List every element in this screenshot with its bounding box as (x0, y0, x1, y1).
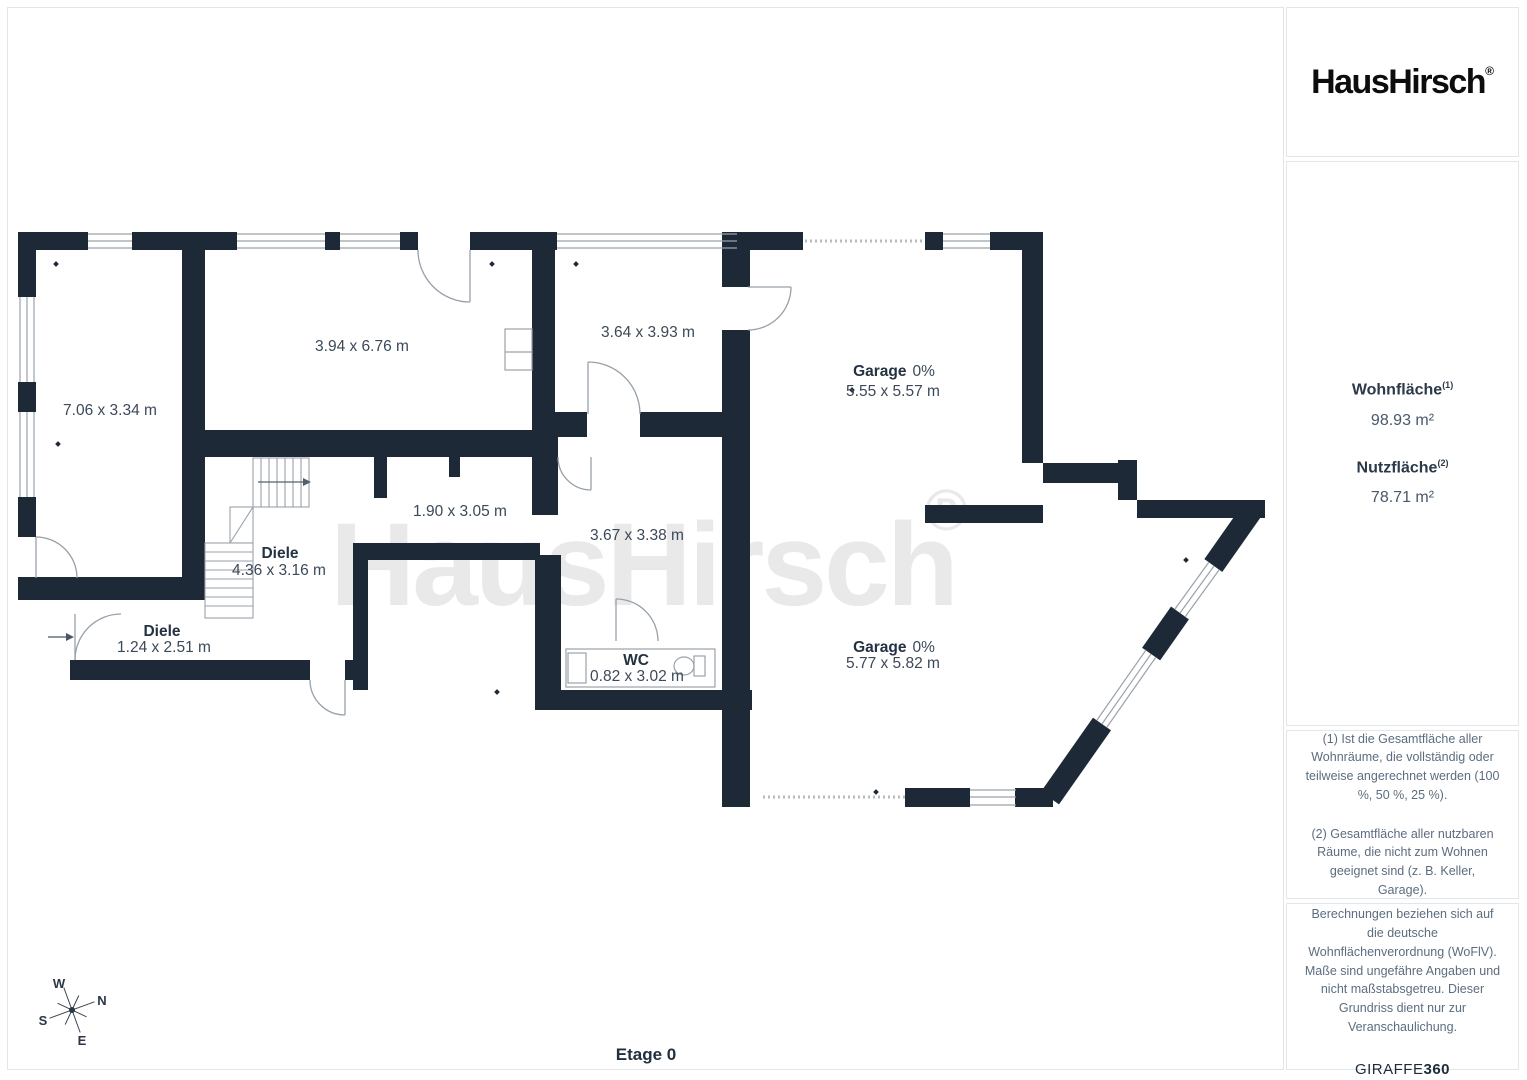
room-dims-room6: 3.67 x 3.38 m (590, 527, 684, 544)
disclaimer-text: Berechnungen beziehen sich auf die deuts… (1303, 905, 1502, 1036)
floorplan-svg: HausHirsch ® (0, 0, 1285, 1075)
room-dims-diele: 4.36 x 3.16 m (232, 562, 326, 579)
entry-arrow-icon (48, 633, 74, 641)
floor-label: Etage 0 (616, 1045, 676, 1064)
area-stats-card: Wohnfläche(1) 98.93 m² Nutzfläche(2) 78.… (1286, 161, 1519, 726)
room-name-garage-top: Garage0% (853, 363, 935, 380)
registered-mark-icon: ® (1485, 64, 1494, 78)
compass-n: N (97, 993, 106, 1008)
shaft-box (505, 329, 532, 370)
stat-value: 78.71 m² (1357, 489, 1449, 507)
footnote-1: (1) Ist die Gesamtfläche aller Wohnräume… (1305, 730, 1500, 805)
room-name-diele: Diele (261, 545, 298, 562)
stat-value: 98.93 m² (1352, 412, 1453, 430)
footnote-2: (2) Gesamtfläche aller nutzbaren Räume, … (1305, 825, 1500, 900)
room-dims-room2: 3.94 x 6.76 m (315, 338, 409, 355)
compass-icon: W N S E (39, 976, 107, 1048)
compass-w: W (53, 976, 66, 991)
stat-wohnflaeche: Wohnfläche(1) 98.93 m² (1352, 380, 1453, 429)
room-dims-wc: 0.82 x 3.02 m (590, 668, 684, 685)
room-name-diele-entry: Diele (143, 623, 180, 640)
logo-card: HausHirsch® (1286, 7, 1519, 157)
diagonal-wall (1050, 509, 1253, 798)
compass-s: S (39, 1013, 48, 1028)
stat-nutzflaeche: Nutzfläche(2) 78.71 m² (1357, 458, 1449, 507)
room-dims-diele-entry: 1.24 x 2.51 m (117, 639, 211, 656)
compass-e: E (78, 1033, 87, 1048)
room-dims-garage-bottom: 5.77 x 5.82 m (846, 655, 940, 672)
room-dims-room3: 3.64 x 3.93 m (601, 324, 695, 341)
room-dims-garage-top: 5.55 x 5.57 m (846, 383, 940, 400)
room-dims-living: 7.06 x 3.34 m (63, 402, 157, 419)
giraffe360-logo: GIRAFFE360 (1355, 1061, 1450, 1078)
room-name-garage-bottom: Garage0% (853, 639, 935, 656)
stat-label: Wohnfläche(1) (1352, 380, 1453, 399)
room-name-wc: WC (623, 652, 649, 669)
brand-logo: HausHirsch® (1311, 63, 1494, 102)
footnotes-card: (1) Ist die Gesamtfläche aller Wohnräume… (1286, 730, 1519, 899)
disclaimer-card: Berechnungen beziehen sich auf die deuts… (1286, 903, 1519, 1070)
room-dims-corridor: 1.90 x 3.05 m (413, 503, 507, 520)
stat-label: Nutzfläche(2) (1357, 458, 1449, 477)
